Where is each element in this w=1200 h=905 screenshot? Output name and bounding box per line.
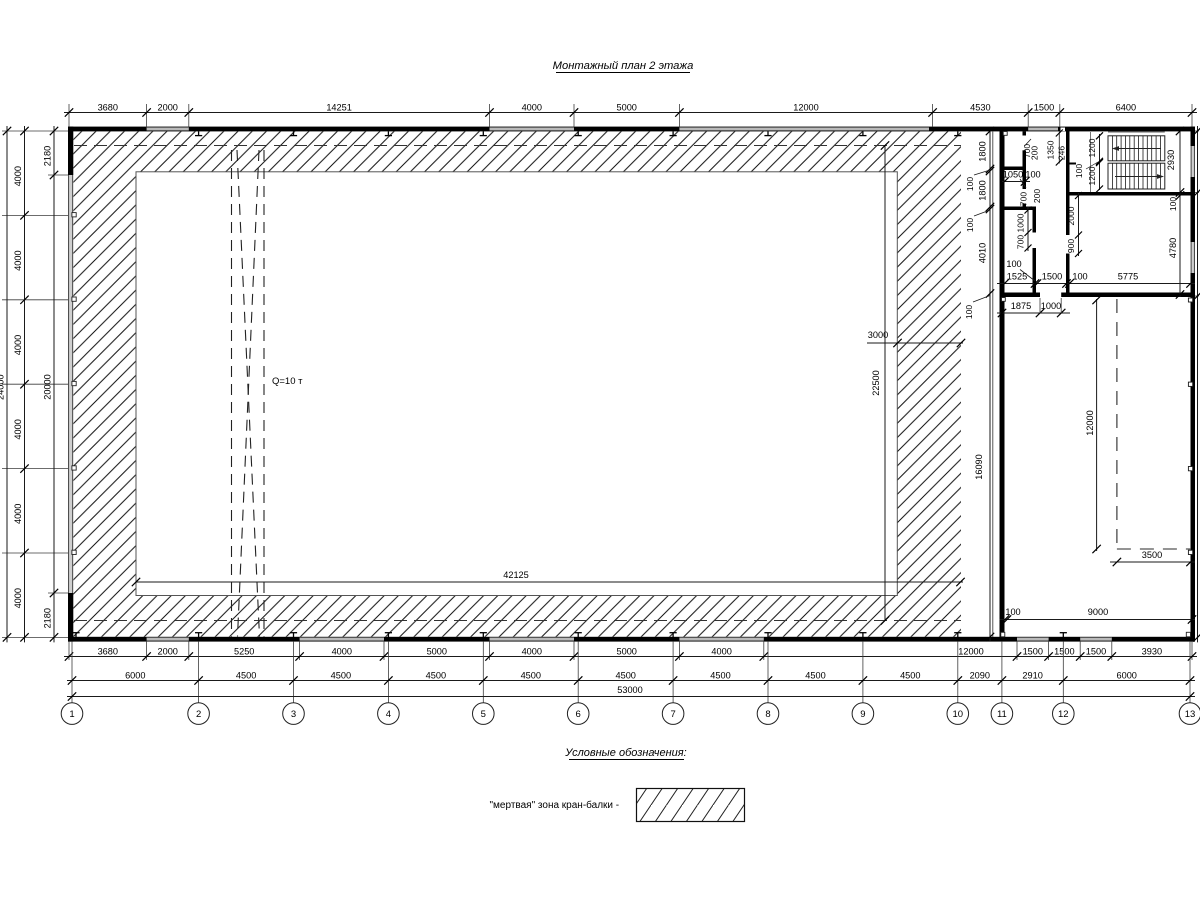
svg-text:4000: 4000 <box>13 504 23 524</box>
svg-text:900: 900 <box>1066 239 1076 253</box>
svg-text:Монтажный план 2 этажа: Монтажный план 2 этажа <box>553 60 694 72</box>
svg-text:4000: 4000 <box>711 647 731 657</box>
svg-text:4500: 4500 <box>710 671 730 681</box>
svg-text:2: 2 <box>196 709 201 720</box>
svg-text:6000: 6000 <box>1116 671 1136 681</box>
svg-text:5775: 5775 <box>1118 272 1138 282</box>
svg-text:4500: 4500 <box>900 671 920 681</box>
svg-text:4000: 4000 <box>522 647 542 657</box>
svg-text:42125: 42125 <box>503 570 529 580</box>
svg-text:4500: 4500 <box>521 671 541 681</box>
svg-text:4000: 4000 <box>13 588 23 608</box>
svg-text:246: 246 <box>1056 146 1066 160</box>
svg-text:3930: 3930 <box>1142 647 1162 657</box>
svg-text:200: 200 <box>1030 146 1040 160</box>
svg-text:700: 700 <box>1019 192 1029 206</box>
svg-text:4000: 4000 <box>13 419 23 439</box>
svg-text:13: 13 <box>1185 709 1196 720</box>
svg-text:1200: 1200 <box>1087 138 1097 157</box>
svg-text:4: 4 <box>386 709 391 720</box>
svg-text:4000: 4000 <box>522 103 542 113</box>
svg-text:1500: 1500 <box>1034 103 1054 113</box>
svg-text:6000: 6000 <box>125 671 145 681</box>
svg-text:5000: 5000 <box>616 647 636 657</box>
svg-text:12: 12 <box>1058 709 1069 720</box>
svg-text:1000: 1000 <box>1041 301 1061 311</box>
svg-text:2000: 2000 <box>157 103 177 113</box>
svg-text:3500: 3500 <box>1142 550 1162 560</box>
svg-text:100: 100 <box>1025 170 1040 180</box>
svg-text:12000: 12000 <box>1085 410 1095 436</box>
svg-text:4500: 4500 <box>331 671 351 681</box>
svg-text:5250: 5250 <box>234 647 254 657</box>
svg-text:22500: 22500 <box>871 370 881 396</box>
svg-text:100: 100 <box>1005 607 1020 617</box>
svg-text:100: 100 <box>965 177 975 191</box>
svg-text:5: 5 <box>481 709 486 720</box>
svg-text:6: 6 <box>576 709 581 720</box>
svg-text:1500: 1500 <box>1042 272 1062 282</box>
svg-text:1000: 1000 <box>1016 213 1026 232</box>
svg-text:1500: 1500 <box>1054 647 1074 657</box>
svg-text:1050: 1050 <box>1003 170 1023 180</box>
svg-text:1: 1 <box>69 709 74 720</box>
svg-text:14251: 14251 <box>326 103 352 113</box>
svg-text:100: 100 <box>1168 197 1178 211</box>
svg-text:6400: 6400 <box>1116 103 1136 113</box>
svg-text:2000: 2000 <box>157 647 177 657</box>
svg-text:2930: 2930 <box>1166 150 1176 170</box>
svg-text:4530: 4530 <box>970 103 990 113</box>
svg-text:4500: 4500 <box>236 671 256 681</box>
svg-text:4500: 4500 <box>615 671 635 681</box>
svg-text:20000: 20000 <box>43 374 53 400</box>
svg-text:11: 11 <box>997 709 1007 720</box>
svg-text:4500: 4500 <box>805 671 825 681</box>
svg-text:2180: 2180 <box>43 146 53 166</box>
svg-text:2000: 2000 <box>1066 206 1076 225</box>
svg-text:100: 100 <box>1006 259 1021 269</box>
svg-text:1200: 1200 <box>1087 166 1097 185</box>
svg-text:10: 10 <box>953 709 964 720</box>
svg-text:3: 3 <box>291 709 296 720</box>
svg-text:4000: 4000 <box>13 166 23 186</box>
svg-text:2090: 2090 <box>970 671 990 681</box>
svg-text:7: 7 <box>670 709 675 720</box>
svg-text:16090: 16090 <box>974 454 984 480</box>
svg-text:1800: 1800 <box>978 141 988 161</box>
svg-text:100: 100 <box>1074 164 1084 178</box>
svg-text:100: 100 <box>965 218 975 232</box>
svg-text:1500: 1500 <box>1086 647 1106 657</box>
svg-text:1800: 1800 <box>978 180 988 200</box>
svg-text:100: 100 <box>964 305 974 319</box>
svg-text:2910: 2910 <box>1022 671 1042 681</box>
svg-text:1500: 1500 <box>1023 647 1043 657</box>
svg-text:Q=10 т: Q=10 т <box>272 376 303 387</box>
svg-text:5000: 5000 <box>427 647 447 657</box>
svg-text:4500: 4500 <box>426 671 446 681</box>
svg-text:4000: 4000 <box>332 647 352 657</box>
svg-text:8: 8 <box>765 709 770 720</box>
svg-text:3680: 3680 <box>98 647 118 657</box>
svg-text:24000: 24000 <box>0 374 6 400</box>
svg-text:4000: 4000 <box>13 335 23 355</box>
svg-text:1875: 1875 <box>1011 301 1031 311</box>
svg-text:Условные обозначения:: Условные обозначения: <box>564 747 686 759</box>
svg-text:4780: 4780 <box>1168 238 1178 258</box>
svg-text:200: 200 <box>1032 189 1042 203</box>
svg-text:"мертвая" зона кран-балки -: "мертвая" зона кран-балки - <box>490 799 620 811</box>
svg-text:2180: 2180 <box>43 608 53 628</box>
svg-text:12000: 12000 <box>793 103 819 113</box>
svg-text:5000: 5000 <box>616 103 636 113</box>
svg-text:53000: 53000 <box>617 685 643 695</box>
svg-text:3680: 3680 <box>98 103 118 113</box>
svg-text:1350: 1350 <box>1046 140 1056 159</box>
svg-text:9000: 9000 <box>1088 607 1108 617</box>
svg-text:100: 100 <box>1072 272 1087 282</box>
svg-text:4010: 4010 <box>978 243 988 263</box>
svg-text:700: 700 <box>1016 235 1026 249</box>
svg-text:4000: 4000 <box>13 250 23 270</box>
svg-text:9: 9 <box>860 709 865 720</box>
svg-text:12000: 12000 <box>958 647 984 657</box>
